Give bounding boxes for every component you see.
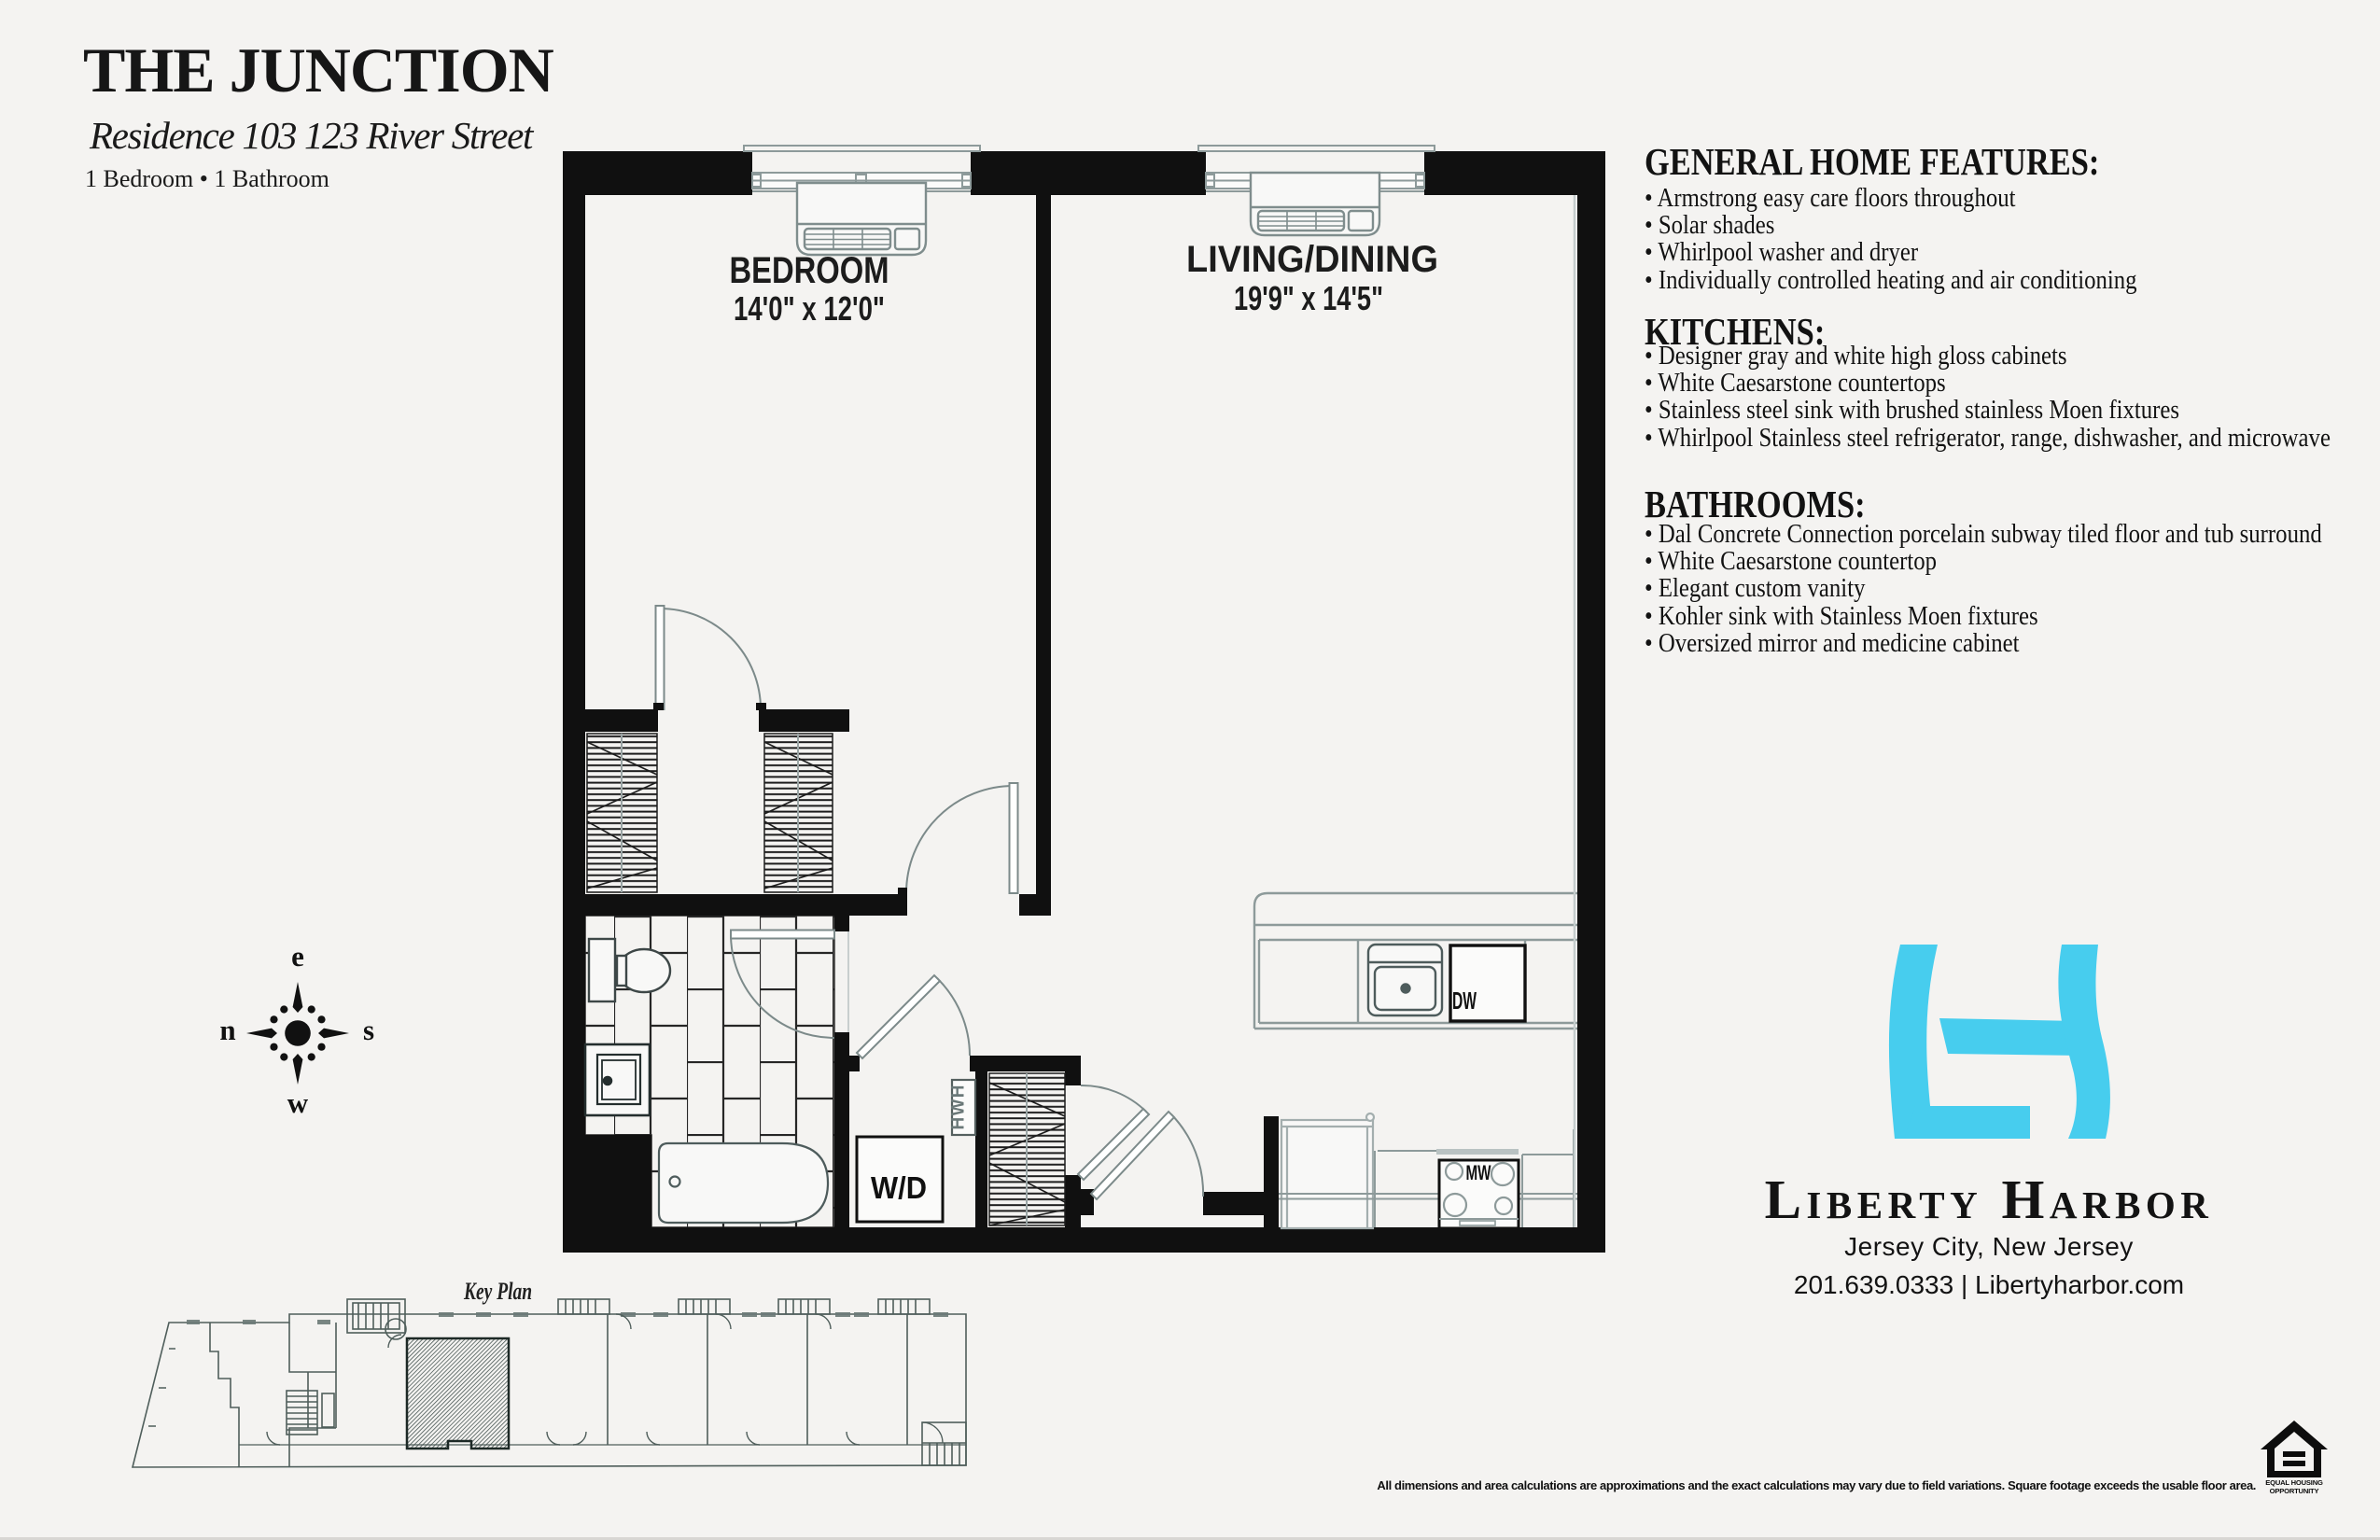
svg-text:s: s <box>363 1014 374 1046</box>
svg-text:14'0" x 12'0": 14'0" x 12'0" <box>734 289 885 328</box>
svg-text:19'9" x 14'5": 19'9" x 14'5" <box>1234 279 1383 317</box>
svg-text:n: n <box>219 1014 235 1046</box>
svg-text:HWH: HWH <box>949 1085 969 1130</box>
svg-text:w: w <box>287 1086 309 1119</box>
svg-text:MW: MW <box>1466 1161 1491 1184</box>
svg-text:EQUAL HOUSING: EQUAL HOUSING <box>2265 1478 2323 1487</box>
svg-text:W/D: W/D <box>871 1170 927 1205</box>
svg-text:DW: DW <box>1452 987 1477 1015</box>
svg-text:OPPORTUNITY: OPPORTUNITY <box>2270 1487 2319 1495</box>
svg-text:LIVING/DINING: LIVING/DINING <box>1186 239 1438 280</box>
svg-text:e: e <box>291 940 304 973</box>
svg-text:BEDROOM: BEDROOM <box>730 250 889 291</box>
